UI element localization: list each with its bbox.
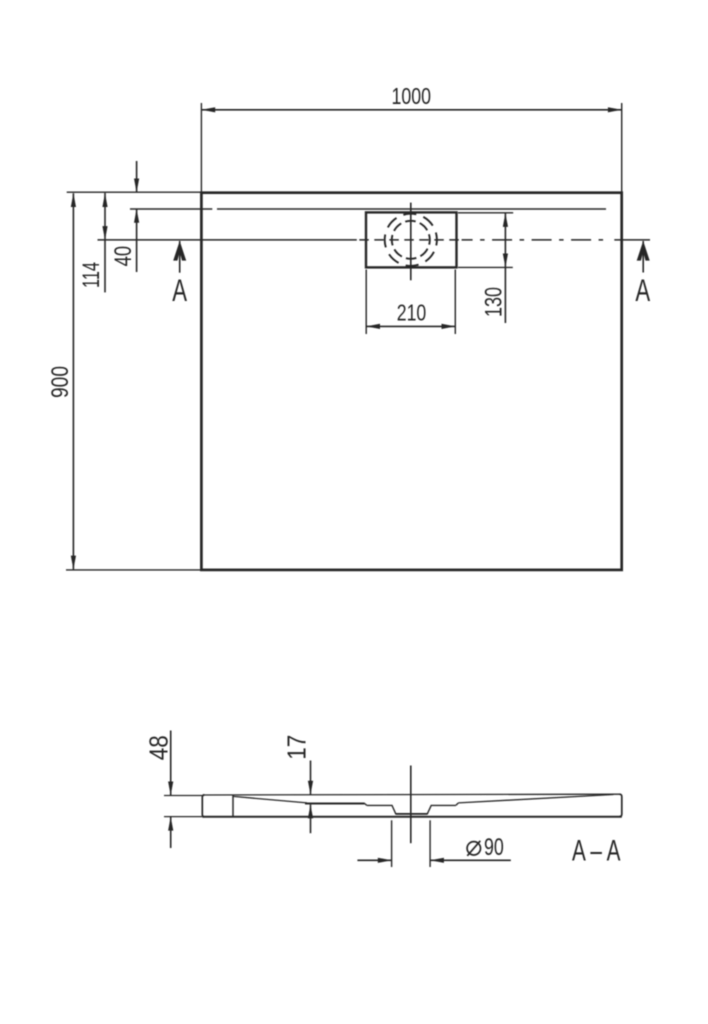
svg-text:A: A (172, 272, 187, 308)
svg-text:A – A: A – A (572, 834, 621, 867)
svg-text:210: 210 (397, 300, 427, 326)
svg-text:17: 17 (284, 735, 312, 760)
svg-text:48: 48 (146, 735, 174, 760)
svg-text:114: 114 (78, 262, 105, 288)
svg-text:90: 90 (484, 834, 504, 861)
svg-text:1000: 1000 (392, 83, 432, 109)
svg-text:900: 900 (47, 366, 74, 398)
svg-text:40: 40 (110, 246, 137, 267)
svg-text:130: 130 (481, 287, 508, 317)
svg-text:A: A (635, 272, 650, 308)
